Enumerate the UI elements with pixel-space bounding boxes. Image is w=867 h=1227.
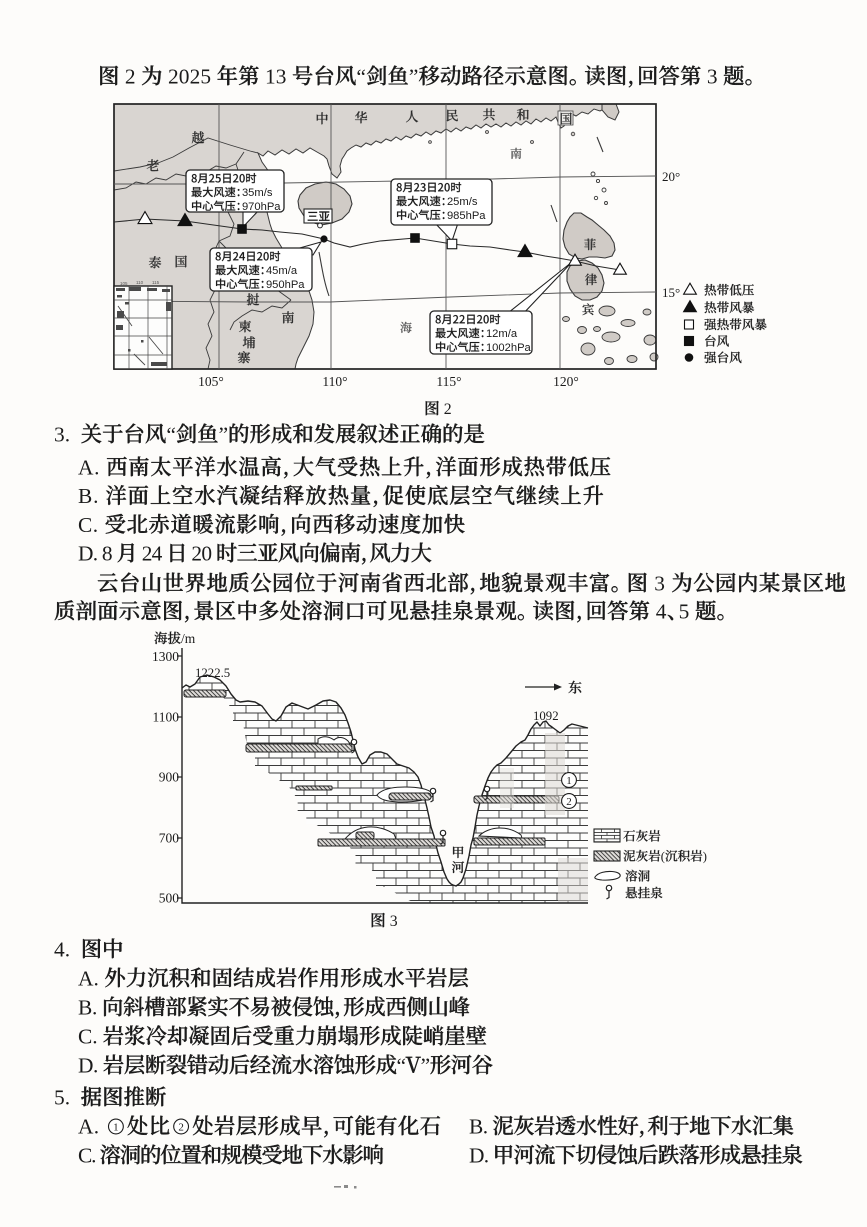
- svg-text:25m/s: 25m/s: [447, 196, 478, 208]
- svg-text:1092: 1092: [533, 709, 559, 723]
- svg-text:13: 13: [265, 65, 286, 89]
- svg-text:1222.5: 1222.5: [195, 666, 230, 680]
- svg-text:C.: C.: [78, 1025, 98, 1049]
- svg-text:3.: 3.: [54, 423, 81, 447]
- svg-text:C.: C.: [78, 513, 98, 537]
- svg-text:120°: 120°: [553, 374, 579, 389]
- svg-text:2: 2: [125, 65, 136, 89]
- svg-text:5: 5: [679, 600, 690, 624]
- svg-text:D.8: D.8: [78, 542, 113, 566]
- svg-text:“: “: [166, 423, 176, 447]
- svg-text:B.: B.: [78, 484, 98, 508]
- svg-text:3: 3: [654, 572, 665, 596]
- svg-text:“: “: [397, 1054, 407, 1078]
- svg-text:1002hPa: 1002hPa: [486, 342, 532, 354]
- svg-text:/m: /m: [181, 631, 196, 646]
- svg-text:105: 105: [120, 281, 128, 286]
- svg-text:24: 24: [142, 542, 163, 566]
- svg-text:20: 20: [191, 542, 212, 566]
- svg-text:3: 3: [707, 65, 718, 89]
- svg-text:15°: 15°: [662, 285, 680, 300]
- svg-text:A.: A.: [78, 456, 99, 480]
- svg-text:C.: C.: [78, 1144, 96, 1168]
- svg-text:B.: B.: [78, 996, 97, 1020]
- svg-text:12m/a: 12m/a: [486, 328, 518, 340]
- svg-text:”: ”: [409, 65, 419, 89]
- svg-text:1300: 1300: [152, 649, 179, 664]
- svg-text:(: (: [661, 850, 665, 864]
- svg-text:700: 700: [159, 831, 180, 846]
- svg-text:4.: 4.: [54, 938, 81, 962]
- svg-text:): ): [703, 850, 707, 864]
- svg-text:”: ”: [421, 1054, 431, 1078]
- svg-text:950hPa: 950hPa: [266, 279, 305, 291]
- svg-text:900: 900: [159, 770, 180, 785]
- svg-text:2025: 2025: [168, 65, 211, 89]
- svg-text:115°: 115°: [436, 374, 461, 389]
- svg-text:4: 4: [656, 600, 667, 624]
- svg-text:500: 500: [159, 891, 180, 906]
- svg-text:110°: 110°: [322, 374, 347, 389]
- svg-text:45m/a: 45m/a: [266, 265, 298, 277]
- svg-text:35m/s: 35m/s: [242, 187, 273, 199]
- svg-text:2: 2: [440, 401, 452, 418]
- svg-text:A.: A.: [78, 967, 99, 991]
- svg-text:970hPa: 970hPa: [242, 201, 281, 213]
- svg-text:D.: D.: [469, 1144, 489, 1168]
- svg-text:20°: 20°: [662, 169, 680, 184]
- svg-text:985hPa: 985hPa: [447, 210, 486, 222]
- svg-text:“: “: [356, 65, 366, 89]
- svg-text:105°: 105°: [198, 374, 224, 389]
- svg-text:1100: 1100: [153, 710, 180, 725]
- svg-text:D.: D.: [78, 1054, 98, 1078]
- svg-text:A.: A.: [78, 1115, 99, 1139]
- svg-text:B.: B.: [469, 1115, 488, 1139]
- svg-text:115: 115: [152, 280, 160, 285]
- svg-text:”: ”: [219, 423, 229, 447]
- svg-text:110: 110: [136, 280, 144, 285]
- svg-text:5.: 5.: [54, 1086, 81, 1110]
- svg-text:3: 3: [386, 913, 398, 930]
